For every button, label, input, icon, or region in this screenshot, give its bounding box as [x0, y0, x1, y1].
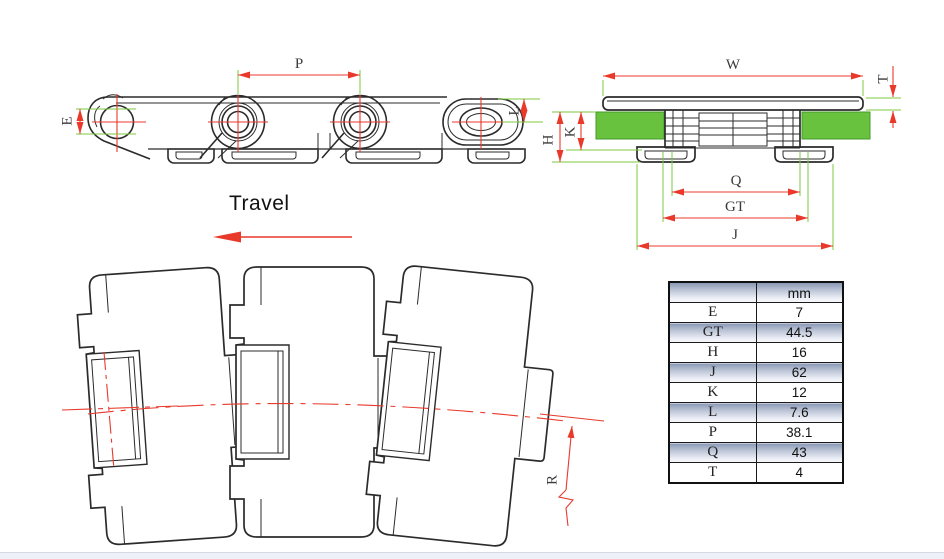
dimension-P: P — [238, 56, 360, 94]
dim-value-cell: 44.5 — [756, 323, 843, 343]
table-row: GT 44.5 — [669, 323, 843, 343]
dim-label-k: K — [562, 126, 578, 137]
dimension-T: T — [866, 66, 901, 128]
foot-right — [775, 147, 833, 162]
dim-label-t: T — [875, 74, 891, 83]
dim-value-cell: 4 — [756, 463, 843, 484]
dim-symbol-cell: GT — [669, 323, 756, 343]
dim-symbol-cell: K — [669, 383, 756, 403]
wear-strip-left — [596, 112, 664, 139]
dim-symbol-cell: L — [669, 403, 756, 423]
table-header-row: mm — [669, 282, 843, 303]
table-row: Q 43 — [669, 443, 843, 463]
table-row: L 7.6 — [669, 403, 843, 423]
dim-value-cell: 62 — [756, 363, 843, 383]
header-unit-cell: mm — [756, 282, 843, 303]
dimension-L: L — [498, 99, 543, 122]
side-view-drawing — [88, 95, 525, 163]
travel-label: Travel — [229, 192, 290, 216]
dim-symbol-cell: P — [669, 423, 756, 443]
top-view-drawing: R — [62, 263, 604, 550]
foot-left — [637, 147, 695, 162]
dim-symbol-cell: H — [669, 343, 756, 363]
dim-value-cell: 38.1 — [756, 423, 843, 443]
dim-label-gt: GT — [725, 199, 745, 215]
dim-symbol-cell: Q — [669, 443, 756, 463]
table-row: K 12 — [669, 383, 843, 403]
dim-value-cell: 7.6 — [756, 403, 843, 423]
dim-label-h: H — [540, 134, 556, 145]
dimension-Q: Q — [672, 152, 800, 196]
table-row: H 16 — [669, 343, 843, 363]
table-row: T 4 — [669, 463, 843, 484]
dim-value-cell: 7 — [756, 303, 843, 323]
dim-value-cell: 16 — [756, 343, 843, 363]
table-row: J 62 — [669, 363, 843, 383]
wear-strip-right — [802, 112, 870, 139]
cross-section-drawing: W T H K Q — [540, 57, 901, 250]
dimension-W: W — [603, 57, 863, 96]
dim-label-w: W — [726, 57, 741, 73]
dim-symbol-cell: T — [669, 463, 756, 484]
dim-label-r: R — [544, 475, 560, 485]
dim-symbol-cell: E — [669, 303, 756, 323]
top-plate — [603, 97, 863, 110]
chain-plate-2 — [230, 267, 403, 537]
dimension-table: mm E 7 GT 44.5 H 16 J 62 K 12 L 7.6 P 38… — [668, 281, 844, 484]
dimension-R: R — [540, 414, 604, 526]
dim-label-j: J — [732, 227, 738, 243]
table-row: E 7 — [669, 303, 843, 323]
travel-arrow-icon — [213, 232, 352, 243]
dim-value-cell: 12 — [756, 383, 843, 403]
table-row: P 38.1 — [669, 423, 843, 443]
dim-label-e: E — [59, 116, 75, 125]
dim-value-cell: 43 — [756, 443, 843, 463]
dim-symbol-cell: J — [669, 363, 756, 383]
dim-label-p: P — [295, 56, 303, 72]
header-symbol-cell — [669, 282, 756, 303]
page-footer-strip — [0, 552, 944, 559]
dim-label-l: L — [506, 106, 522, 115]
dim-label-q: Q — [731, 173, 742, 189]
